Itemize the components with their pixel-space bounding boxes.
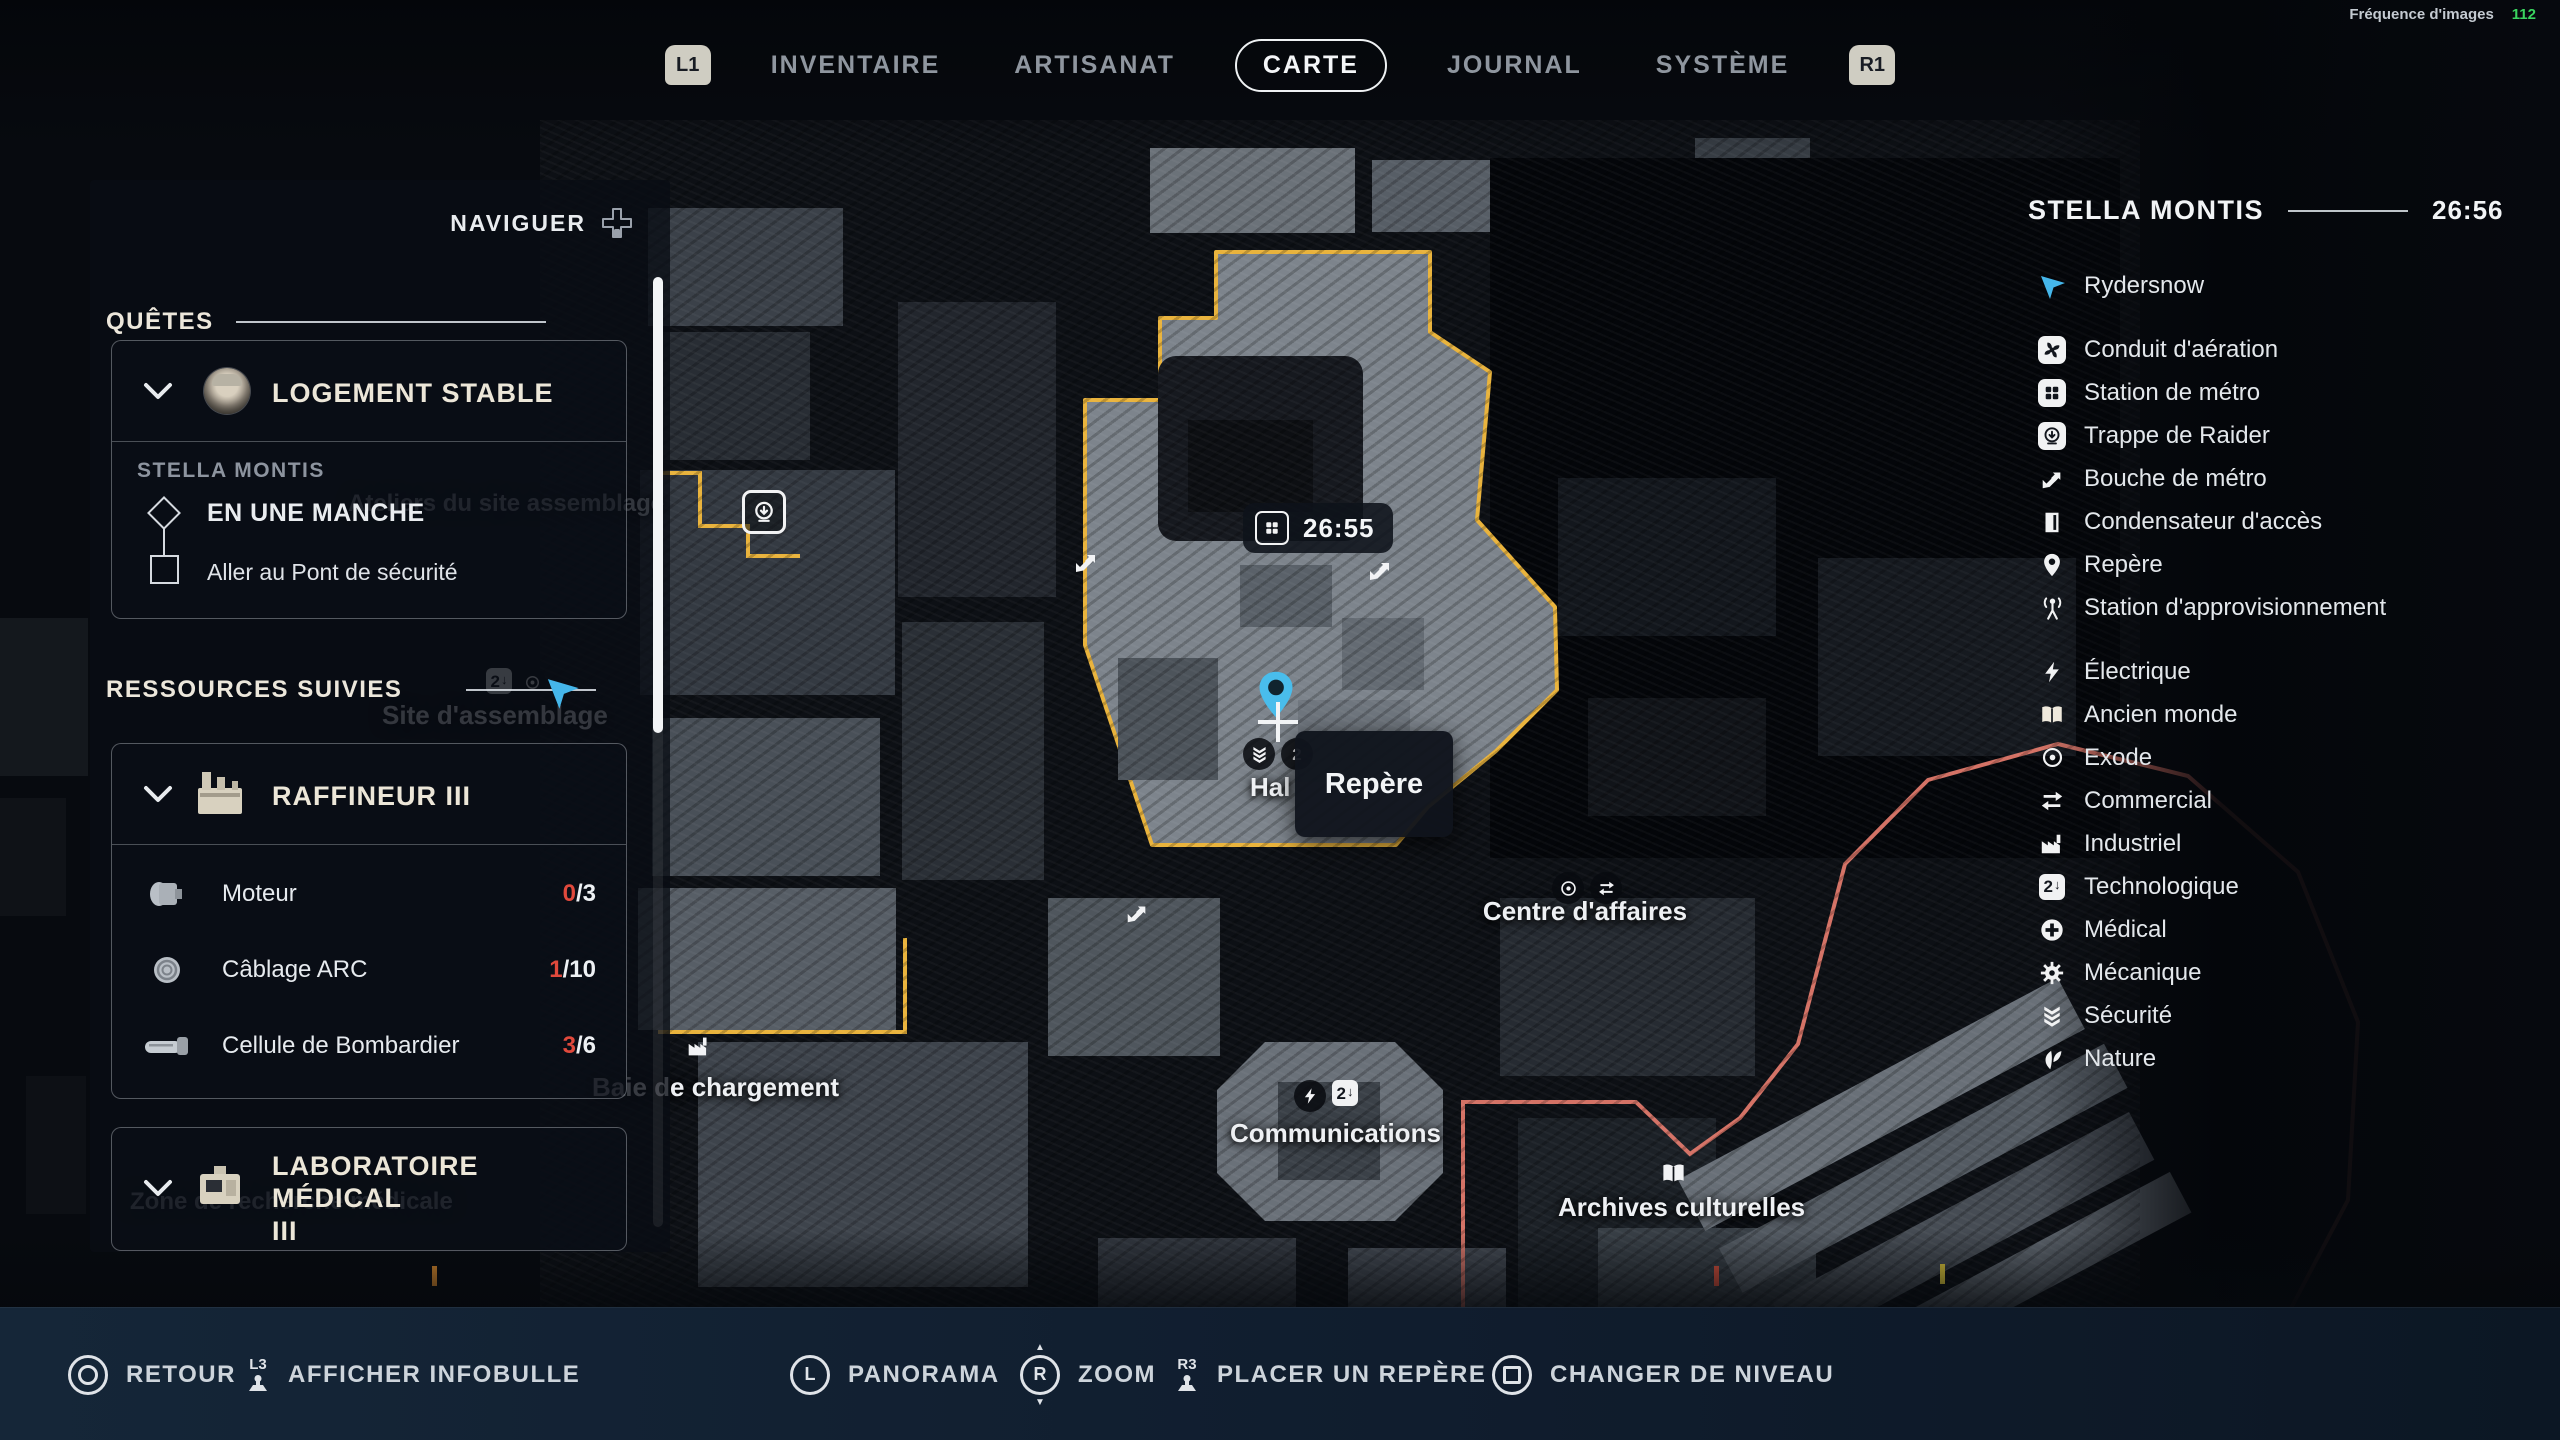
resources-section-header: RESSOURCES SUIVIES (106, 676, 596, 704)
legend-label: Technologique (2084, 873, 2239, 901)
vent-fan-icon (2036, 336, 2068, 364)
legend-label: Repère (2084, 551, 2163, 579)
legend-panel: STELLA MONTIS 26:56 (2028, 195, 2528, 226)
map-pin-icon (2036, 552, 2068, 578)
legend-item: Commercial (2036, 779, 2536, 822)
quest-title: LOGEMENT STABLE (272, 377, 554, 409)
legend-item: Trappe de Raider (2036, 414, 2536, 457)
legend-item: Repère (2036, 543, 2536, 586)
map-legend: Rydersnow Conduit d'aération Station de … (2036, 264, 2536, 1080)
medical-lab-icon (194, 1160, 248, 1212)
map-tick (1940, 1264, 1945, 1284)
resource-name: Cellule de Bombardier (222, 1032, 563, 1060)
legend-item: Station de métro (2036, 371, 2536, 414)
legend-item: Exode (2036, 736, 2536, 779)
metro-entrance-marker (1366, 556, 1394, 584)
action-afficher-infobulle[interactable]: L3 AFFICHER INFOBULLE (246, 1308, 580, 1440)
legend-label: Industriel (2084, 830, 2181, 858)
quest-connector-line (163, 529, 165, 555)
wiring-item-icon (112, 952, 222, 988)
bottom-action-bar: RETOUR L3 AFFICHER INFOBULLE L PANORAMA … (0, 1307, 2560, 1440)
quest-stage-label: EN UNE MANCHE (207, 499, 425, 528)
refiner-title: RAFFINEUR III (272, 780, 471, 812)
legend-label: Station d'approvisionnement (2084, 594, 2386, 622)
legend-label: Condensateur d'accès (2084, 508, 2322, 536)
security-marker (1243, 738, 1275, 770)
l1-bumper-icon[interactable]: L1 (665, 45, 711, 85)
action-panorama[interactable]: L PANORAMA (790, 1308, 1000, 1440)
fps-label: Fréquence d'images (2349, 6, 2493, 23)
map-tick (432, 1266, 437, 1286)
navigate-label: NAVIGUER (450, 210, 586, 237)
commerce-marker (1590, 872, 1622, 904)
gear-icon (2036, 960, 2068, 986)
quest-stage-diamond-icon (147, 496, 181, 530)
factory-marker (686, 1034, 711, 1059)
commerce-arrows-icon (2036, 788, 2068, 814)
legend-header: STELLA MONTIS 26:56 (2028, 195, 2528, 226)
quest-objective-checkbox (150, 555, 179, 584)
legend-item: Rydersnow (2036, 264, 2536, 307)
chevron-down-icon[interactable] (142, 381, 174, 401)
quest-card-header[interactable]: LOGEMENT STABLE (112, 341, 626, 441)
circle-button-icon (68, 1355, 108, 1395)
action-placer-repere[interactable]: R3 PLACER UN REPÈRE (1175, 1308, 1486, 1440)
quests-section-header: QUÊTES (106, 308, 546, 336)
metro-entrance-icon (2036, 466, 2068, 492)
waypoint-tooltip: Repère (1295, 731, 1453, 837)
tab-systeme[interactable]: SYSTÈME (1642, 41, 1803, 90)
legend-label: Conduit d'aération (2084, 336, 2278, 364)
legend-label: Nature (2084, 1045, 2156, 1073)
map-label-hal: Hal (1250, 772, 1290, 803)
legend-item: Condensateur d'accès (2036, 500, 2536, 543)
quest-panel: NAVIGUER QUÊTES LOGEMENT STABLE STELLA M… (90, 180, 670, 1252)
player-arrow-icon (2036, 272, 2068, 300)
player-arrow-icon (544, 674, 580, 710)
action-label: AFFICHER INFOBULLE (288, 1361, 580, 1389)
tech-marker: 2↓ (1332, 1080, 1358, 1106)
quests-header-label: QUÊTES (106, 308, 214, 336)
lab-title: LABORATOIRE MÉDICALIII (272, 1150, 602, 1247)
exodus-eye-icon (2036, 745, 2068, 770)
l3-stick-icon: L3 (246, 1357, 270, 1392)
square-button-icon (1492, 1355, 1532, 1395)
action-zoom[interactable]: R ZOOM (1020, 1308, 1156, 1440)
legend-item: Ancien monde (2036, 693, 2536, 736)
legend-label: Sécurité (2084, 1002, 2172, 1030)
header-rule (2288, 210, 2408, 212)
lightning-icon (2036, 660, 2068, 684)
legend-label: Exode (2084, 744, 2152, 772)
legend-item: 2↓ Technologique (2036, 865, 2536, 908)
tab-artisanat[interactable]: ARTISANAT (1000, 41, 1189, 90)
legend-label: Ancien monde (2084, 701, 2237, 729)
supply-station-icon (2036, 594, 2068, 621)
raider-hatch-marker (742, 490, 786, 534)
security-chevrons-icon (2036, 1004, 2068, 1028)
nature-leaf-icon (2036, 1046, 2068, 1071)
resource-count: 3/6 (563, 1032, 596, 1060)
navigate-hint: NAVIGUER (450, 206, 634, 240)
legend-item: Électrique (2036, 650, 2536, 693)
action-label: PLACER UN REPÈRE (1217, 1361, 1486, 1389)
card-divider (112, 844, 626, 845)
old-world-book-marker (1660, 1160, 1687, 1187)
resource-name: Moteur (222, 880, 563, 908)
medical-cross-icon (2036, 917, 2068, 943)
fps-value: 112 (2512, 6, 2536, 23)
tab-inventaire[interactable]: INVENTAIRE (757, 41, 955, 90)
action-label: CHANGER DE NIVEAU (1550, 1361, 1834, 1389)
quest-card[interactable]: LOGEMENT STABLE STELLA MONTIS EN UNE MAN… (111, 340, 627, 619)
refiner-card-header[interactable]: RAFFINEUR III (112, 744, 626, 844)
chevron-down-icon[interactable] (142, 784, 174, 804)
legend-label: Rydersnow (2084, 272, 2204, 300)
resource-count: 0/3 (563, 880, 596, 908)
resource-row[interactable]: Câblage ARC 1/10 (112, 932, 626, 1008)
map-label-communications: Communications (1230, 1118, 1430, 1149)
area-time: 26:56 (2432, 195, 2504, 226)
top-navigation: L1 INVENTAIRE ARTISANAT CARTE JOURNAL SY… (0, 30, 2560, 100)
lightning-marker (1294, 1080, 1326, 1112)
dpad-icon (600, 206, 634, 240)
map-tick (1714, 1266, 1719, 1286)
exodus-eye-marker (1552, 872, 1584, 904)
metro-station-icon (1255, 511, 1289, 545)
legend-label: Bouche de métro (2084, 465, 2267, 493)
quest-giver-avatar (204, 368, 250, 414)
bomber-cell-item-icon (112, 1032, 222, 1060)
fps-counter: Fréquence d'images 112 (2349, 6, 2536, 23)
legend-label: Électrique (2084, 658, 2191, 686)
map-label-centre-affaires: Centre d'affaires (1475, 896, 1695, 927)
r3-stick-icon: R3 (1175, 1357, 1199, 1392)
quest-objective-label: Aller au Pont de sécurité (207, 559, 458, 586)
resource-row[interactable]: Cellule de Bombardier 3/6 (112, 1008, 626, 1084)
map-cursor-crosshair[interactable] (1258, 702, 1298, 742)
action-label: RETOUR (126, 1361, 236, 1389)
tab-journal[interactable]: JOURNAL (1433, 41, 1596, 90)
legend-item: Station d'approvisionnement (2036, 586, 2536, 629)
resources-header-label: RESSOURCES SUIVIES (106, 676, 402, 704)
resource-count: 1/10 (549, 956, 596, 984)
legend-item: Bouche de métro (2036, 457, 2536, 500)
metro-station-badge: 26:55 (1243, 503, 1393, 553)
legend-item: Conduit d'aération (2036, 328, 2536, 371)
raider-hatch-icon (2036, 422, 2068, 450)
legend-label: Mécanique (2084, 959, 2201, 987)
legend-item: Nature (2036, 1037, 2536, 1080)
r1-bumper-icon[interactable]: R1 (1849, 45, 1895, 85)
lab-card-header[interactable]: LABORATOIRE MÉDICALIII (112, 1128, 626, 1248)
quest-zone-label: STELLA MONTIS (137, 459, 325, 483)
left-stick-icon: L (790, 1355, 830, 1395)
game-map-screen: Ateliers du site assemblage Site d'assem… (0, 0, 2560, 1440)
metro-entrance-marker (1124, 900, 1150, 926)
action-label: PANORAMA (848, 1361, 1000, 1389)
legend-label: Station de métro (2084, 379, 2260, 407)
engine-item-icon (112, 878, 222, 910)
metro-badge-time: 26:55 (1303, 513, 1375, 544)
area-title: STELLA MONTIS (2028, 195, 2264, 226)
action-retour[interactable]: RETOUR (68, 1308, 236, 1440)
resource-row[interactable]: Moteur 0/3 (112, 856, 626, 932)
refiner-card[interactable]: RAFFINEUR III Moteur 0/3 Câblage ARC 1/1… (111, 743, 627, 1099)
resource-name: Câblage ARC (222, 956, 549, 984)
medical-lab-card[interactable]: LABORATOIRE MÉDICALIII (111, 1127, 627, 1251)
tech-icon: 2↓ (2036, 874, 2068, 900)
refiner-icon (192, 766, 250, 820)
right-stick-icon: R (1020, 1355, 1060, 1395)
action-changer-niveau[interactable]: CHANGER DE NIVEAU (1492, 1308, 1834, 1440)
card-divider (112, 441, 626, 442)
panel-scrollbar-thumb[interactable] (653, 277, 663, 733)
legend-label: Trappe de Raider (2084, 422, 2270, 450)
old-world-book-icon (2036, 702, 2068, 728)
map-label-archives: Archives culturelles (1558, 1192, 1788, 1223)
legend-item: Mécanique (2036, 951, 2536, 994)
legend-label: Médical (2084, 916, 2167, 944)
metro-station-icon (2036, 379, 2068, 407)
legend-item: Médical (2036, 908, 2536, 951)
header-rule (236, 321, 546, 323)
legend-label: Commercial (2084, 787, 2212, 815)
metro-entrance-marker (1072, 548, 1100, 576)
chevron-down-icon[interactable] (142, 1178, 174, 1198)
legend-item: Sécurité (2036, 994, 2536, 1037)
legend-item: Industriel (2036, 822, 2536, 865)
tab-carte[interactable]: CARTE (1235, 39, 1387, 92)
access-door-icon (2036, 509, 2068, 535)
factory-icon (2036, 831, 2068, 857)
action-label: ZOOM (1078, 1361, 1156, 1389)
